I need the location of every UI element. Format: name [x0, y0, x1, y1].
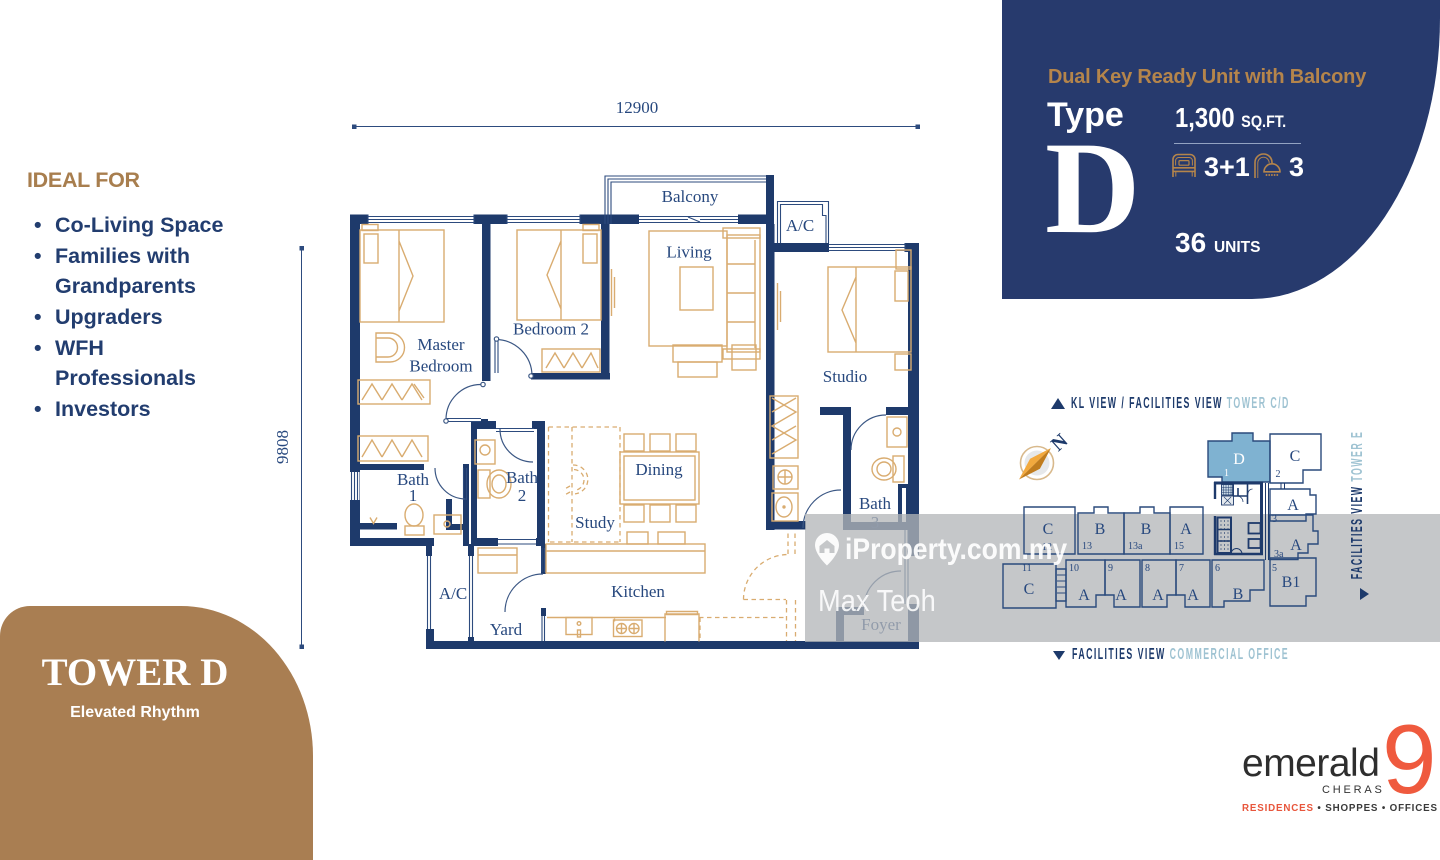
svg-text:3: 3 — [1272, 514, 1277, 525]
svg-text:Balcony: Balcony — [662, 187, 719, 206]
svg-text:Dining: Dining — [635, 460, 683, 479]
svg-text:C: C — [1024, 581, 1035, 598]
svg-text:2: 2 — [518, 486, 527, 505]
svg-text:Studio: Studio — [823, 367, 867, 386]
svg-text:A: A — [1078, 587, 1090, 604]
svg-text:A/C: A/C — [439, 584, 467, 603]
svg-text:A/C: A/C — [786, 216, 814, 235]
svg-text:2: 2 — [1276, 469, 1281, 480]
svg-text:C: C — [1290, 448, 1301, 465]
svg-text:8: 8 — [1145, 563, 1150, 574]
svg-text:1: 1 — [409, 486, 418, 505]
svg-text:B: B — [1233, 586, 1244, 603]
svg-text:3a: 3a — [1274, 549, 1284, 560]
svg-text:Living: Living — [666, 243, 712, 262]
svg-text:Kitchen: Kitchen — [611, 582, 665, 601]
svg-text:A: A — [1152, 587, 1164, 604]
svg-text:12900: 12900 — [616, 98, 659, 117]
svg-text:13: 13 — [1082, 541, 1092, 552]
svg-text:iProperty.com.my: iProperty.com.my — [845, 533, 1068, 566]
svg-text:5: 5 — [1272, 563, 1277, 574]
svg-text:B1: B1 — [1282, 574, 1301, 591]
svg-text:Bath: Bath — [859, 494, 892, 513]
svg-text:A: A — [1287, 497, 1299, 514]
svg-text:A: A — [1290, 537, 1302, 554]
svg-text:7: 7 — [1179, 563, 1184, 574]
svg-text:15: 15 — [1174, 541, 1184, 552]
svg-text:Bedroom: Bedroom — [409, 357, 472, 376]
svg-text:Bath: Bath — [506, 468, 539, 487]
svg-text:D: D — [1233, 451, 1245, 468]
svg-text:10: 10 — [1069, 563, 1079, 574]
svg-text:Max Teoh: Max Teoh — [818, 584, 936, 618]
svg-text:KL VIEW / FACILITIES VIEW TOWE: KL VIEW / FACILITIES VIEW TOWER C/D — [1071, 393, 1290, 412]
svg-text:6: 6 — [1215, 563, 1220, 574]
svg-text:1: 1 — [1224, 468, 1229, 479]
svg-text:B: B — [1141, 521, 1152, 538]
svg-text:Bedroom 2: Bedroom 2 — [513, 320, 589, 339]
svg-text:9808: 9808 — [273, 430, 292, 464]
svg-text:13a: 13a — [1128, 541, 1143, 552]
svg-text:FACILITIES VIEW COMMERCIAL OFF: FACILITIES VIEW COMMERCIAL OFFICE — [1072, 644, 1289, 663]
svg-text:A: A — [1115, 587, 1127, 604]
svg-text:FACILITIES VIEW TOWER E: FACILITIES VIEW TOWER E — [1347, 431, 1366, 580]
svg-text:A: A — [1180, 521, 1192, 538]
svg-text:Study: Study — [575, 513, 615, 532]
svg-text:Master: Master — [417, 335, 465, 354]
svg-text:B: B — [1095, 521, 1106, 538]
svg-text:9: 9 — [1108, 563, 1113, 574]
svg-text:N: N — [1047, 429, 1073, 455]
svg-text:Yard: Yard — [490, 620, 523, 639]
svg-text:A: A — [1187, 587, 1199, 604]
